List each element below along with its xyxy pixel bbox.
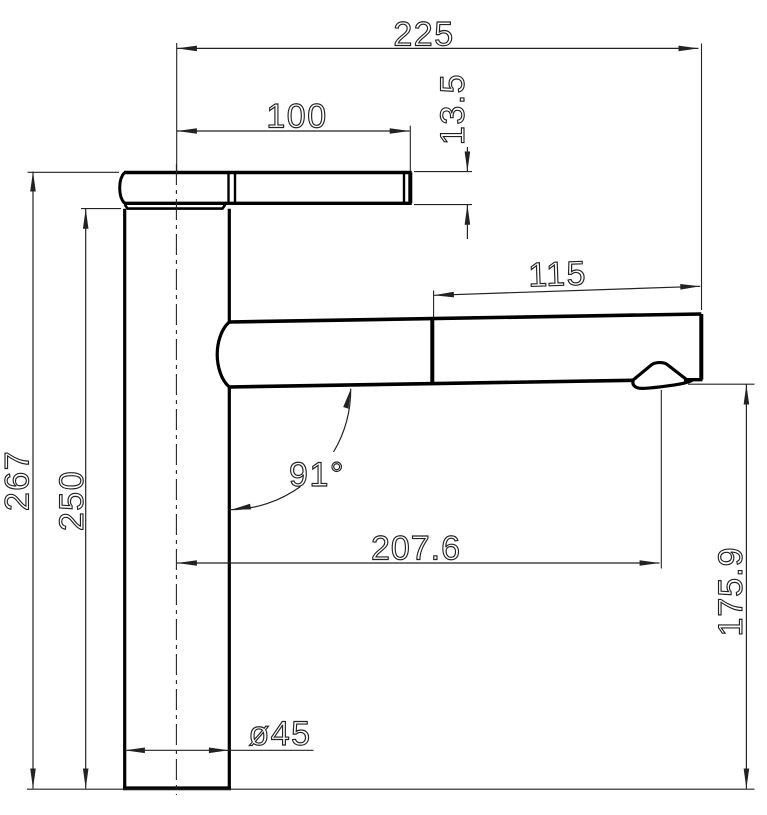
svg-text:250: 250	[53, 470, 91, 531]
svg-text:175.9: 175.9	[712, 546, 750, 636]
svg-text:ø45: ø45	[248, 715, 311, 753]
svg-text:115: 115	[528, 254, 588, 294]
svg-text:225: 225	[393, 16, 454, 54]
svg-text:13.5: 13.5	[434, 73, 472, 145]
svg-text:91°: 91°	[289, 456, 345, 494]
svg-text:267: 267	[0, 450, 37, 511]
svg-text:100: 100	[266, 98, 327, 136]
svg-text:207.6: 207.6	[371, 530, 461, 568]
